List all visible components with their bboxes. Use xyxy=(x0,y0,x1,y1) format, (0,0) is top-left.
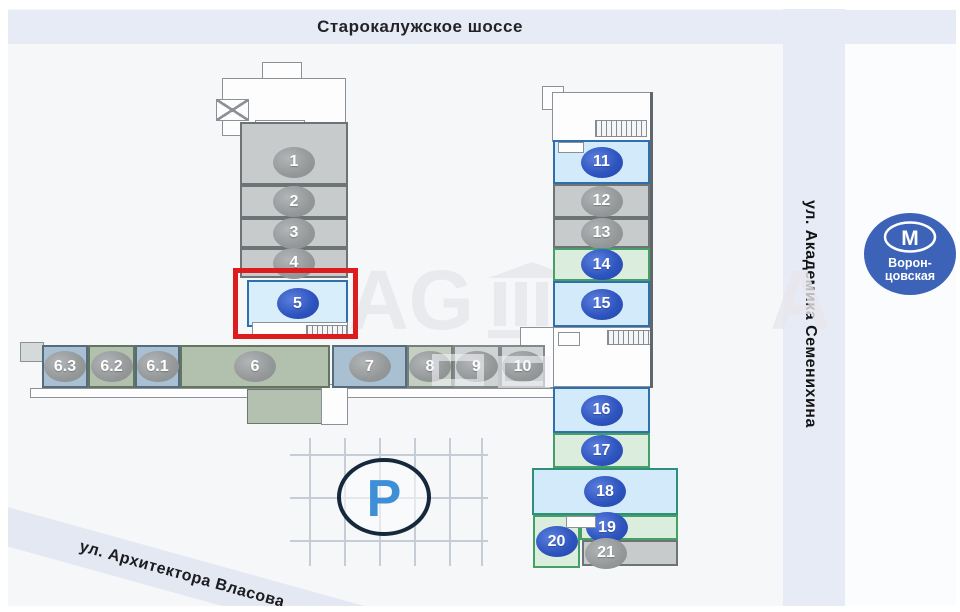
unit-number-badge: 6.1 xyxy=(137,351,179,382)
page-margin xyxy=(0,0,8,612)
unit-number-badge: 16 xyxy=(581,395,623,426)
unit-6[interactable]: 6 xyxy=(180,345,330,388)
unit-number-badge: 12 xyxy=(581,186,623,217)
unit-17[interactable]: 17 xyxy=(553,433,650,468)
metro-station-badge: М Ворон- цовская xyxy=(864,212,957,296)
structure-outline xyxy=(558,142,584,153)
unit-2[interactable]: 2 xyxy=(240,185,348,218)
watermark-fragment xyxy=(432,354,484,386)
unit-6.3[interactable]: 6.3 xyxy=(42,345,88,388)
page-margin xyxy=(956,0,960,612)
unit-number-badge: 11 xyxy=(581,147,623,178)
unit-21[interactable]: 21 xyxy=(582,540,678,566)
unit-number-badge: 20 xyxy=(536,526,578,557)
unit-number-badge: 2 xyxy=(273,186,315,217)
unit-number-badge: 7 xyxy=(349,351,391,382)
unit-number-badge: 17 xyxy=(581,435,623,466)
page-margin xyxy=(0,0,960,9)
unit-number-badge: 21 xyxy=(585,538,627,569)
unit-1[interactable]: 1 xyxy=(240,122,348,185)
unit-7[interactable]: 7 xyxy=(332,345,407,388)
building-wall-line xyxy=(650,92,653,388)
unit-3[interactable]: 3 xyxy=(240,218,348,248)
site-plan: Старокалужское шоссе ул. Академика Семен… xyxy=(0,0,960,612)
unit-number-badge: 6 xyxy=(234,351,276,382)
unit-15[interactable]: 15 xyxy=(553,281,650,327)
unit-6.2[interactable]: 6.2 xyxy=(88,345,135,388)
unit-number-badge: 6.2 xyxy=(91,351,133,382)
metro-name-line2: цовская xyxy=(885,269,935,283)
unit-number-badge: 13 xyxy=(581,218,623,249)
metro-name-line1: Ворон- xyxy=(888,256,932,270)
unit-number-badge: 14 xyxy=(581,249,623,280)
watermark-fragment xyxy=(498,356,550,388)
units-layer: 123456.36.26.167891011121314151617182019… xyxy=(0,0,960,612)
unit-16[interactable]: 16 xyxy=(553,387,650,433)
unit-13[interactable]: 13 xyxy=(553,218,650,248)
unit-12[interactable]: 12 xyxy=(553,184,650,218)
unit-number-badge: 3 xyxy=(273,218,315,249)
highlight-box xyxy=(233,268,358,339)
unit-18[interactable]: 18 xyxy=(532,468,678,515)
unit-14[interactable]: 14 xyxy=(553,248,650,281)
page-margin xyxy=(0,606,960,612)
unit-number-badge: 1 xyxy=(273,147,315,178)
unit-number-badge: 6.3 xyxy=(44,351,86,382)
unit-number-badge: 18 xyxy=(584,476,626,507)
metro-logo-letter: М xyxy=(901,227,919,250)
unit-number-badge: 15 xyxy=(581,289,623,320)
unit-6.1[interactable]: 6.1 xyxy=(135,345,180,388)
structure-outline xyxy=(566,516,596,528)
